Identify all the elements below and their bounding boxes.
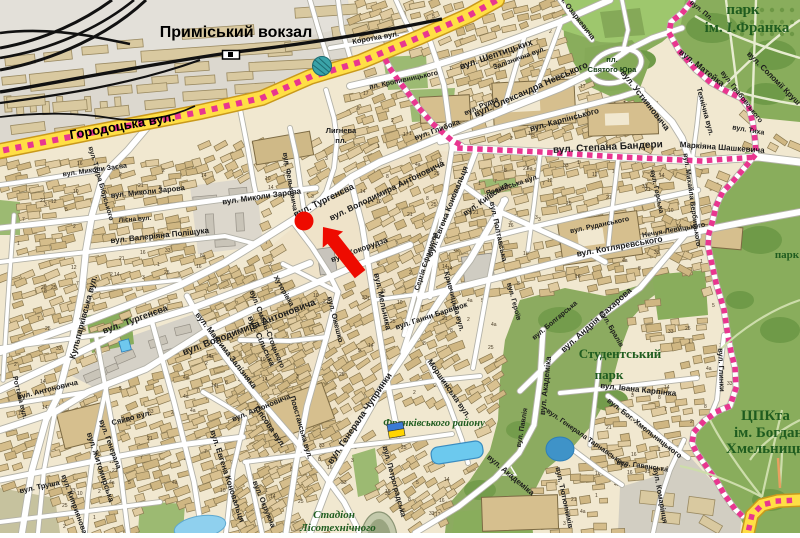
svg-text:пл.: пл. [606,55,617,64]
svg-text:2: 2 [73,224,76,230]
svg-text:33: 33 [165,248,171,254]
svg-text:10: 10 [668,208,674,214]
svg-text:8: 8 [423,341,426,347]
svg-text:25: 25 [298,499,304,505]
svg-text:Приміський вокзал: Приміський вокзал [160,24,312,41]
svg-text:7: 7 [37,316,40,322]
svg-text:5: 5 [712,303,715,309]
svg-text:33: 33 [563,163,569,169]
svg-text:10: 10 [265,176,271,182]
svg-text:ім. І.Франка: ім. І.Франка [705,20,790,36]
svg-text:8: 8 [704,404,707,410]
svg-text:4а: 4а [415,162,421,168]
svg-text:1: 1 [449,66,452,72]
svg-text:2: 2 [269,262,272,268]
svg-text:14: 14 [360,189,366,195]
svg-text:1: 1 [377,144,380,150]
svg-text:парк: парк [775,249,800,261]
svg-text:16: 16 [140,250,146,256]
svg-text:3: 3 [631,393,634,399]
svg-text:14: 14 [444,477,450,483]
svg-text:7: 7 [542,181,545,187]
svg-text:10: 10 [385,489,391,495]
svg-text:21: 21 [645,187,651,193]
svg-text:2: 2 [690,419,693,425]
svg-text:25: 25 [566,201,572,207]
svg-text:4а: 4а [580,509,586,515]
svg-text:2: 2 [409,270,412,276]
svg-text:1: 1 [216,384,219,390]
svg-text:парк: парк [595,367,624,382]
svg-text:2: 2 [98,489,101,495]
svg-text:10: 10 [313,293,319,299]
svg-text:14: 14 [659,173,665,179]
svg-text:14: 14 [114,272,120,278]
svg-text:4а: 4а [622,258,628,264]
svg-text:5: 5 [119,386,122,392]
svg-text:14: 14 [262,377,268,383]
svg-text:8: 8 [638,266,641,272]
svg-text:12: 12 [547,178,553,184]
svg-text:10: 10 [73,189,79,195]
svg-text:ім. Богдана: ім. Богдана [734,425,800,441]
svg-text:8: 8 [450,328,453,334]
svg-text:33: 33 [341,480,347,486]
svg-text:21: 21 [119,256,125,262]
svg-text:1: 1 [658,447,661,453]
svg-text:1: 1 [409,131,412,137]
svg-text:3: 3 [325,156,328,162]
svg-text:2: 2 [14,362,17,368]
svg-text:7: 7 [494,179,497,185]
svg-text:7: 7 [421,305,424,311]
svg-text:4а: 4а [491,322,497,328]
svg-text:2: 2 [510,136,513,142]
svg-text:5: 5 [357,106,360,112]
svg-text:7: 7 [204,449,207,455]
svg-text:4а: 4а [706,366,712,372]
svg-text:7: 7 [664,407,667,413]
svg-text:17: 17 [363,91,369,97]
svg-text:Студентський: Студентський [579,346,662,361]
svg-text:25: 25 [488,345,494,351]
svg-text:2: 2 [377,261,380,267]
svg-text:33: 33 [727,381,733,387]
svg-text:16: 16 [508,223,514,229]
svg-text:Лигнева: Лигнева [326,126,357,135]
svg-text:33: 33 [362,295,368,301]
svg-text:14: 14 [40,379,46,385]
svg-text:5: 5 [203,255,206,261]
svg-text:33: 33 [668,329,674,335]
svg-text:1: 1 [478,181,481,187]
svg-text:4а: 4а [172,480,178,486]
svg-text:25: 25 [62,503,68,509]
svg-text:14: 14 [270,494,276,500]
svg-text:2: 2 [63,524,66,530]
svg-text:ЦПКта: ЦПКта [741,408,790,424]
svg-text:8: 8 [386,174,389,180]
svg-text:25: 25 [51,285,57,291]
svg-text:4а: 4а [190,408,196,414]
svg-text:2: 2 [413,390,416,396]
svg-text:5: 5 [128,480,131,486]
svg-text:2: 2 [467,317,470,323]
svg-text:2: 2 [162,168,165,174]
svg-text:5: 5 [358,348,361,354]
svg-text:16: 16 [631,452,637,458]
svg-text:2: 2 [110,272,113,278]
svg-text:33: 33 [56,346,62,352]
svg-text:25: 25 [431,202,437,208]
svg-text:12: 12 [592,172,598,178]
svg-text:16: 16 [439,498,445,504]
svg-text:4а: 4а [467,298,473,304]
svg-text:1: 1 [700,259,703,265]
svg-text:Святого Юра: Святого Юра [588,65,637,74]
svg-text:3: 3 [351,458,354,464]
svg-text:10: 10 [397,300,403,306]
svg-text:21: 21 [442,316,448,322]
svg-text:2: 2 [205,361,208,367]
svg-text:17: 17 [403,132,409,138]
svg-text:8: 8 [225,380,228,386]
svg-text:14: 14 [368,343,374,349]
svg-text:4а: 4а [183,394,189,400]
svg-text:16: 16 [77,161,83,167]
svg-text:8: 8 [426,196,429,202]
svg-text:1: 1 [688,339,691,345]
svg-text:пл.: пл. [335,136,346,145]
svg-text:1: 1 [595,493,598,499]
svg-text:14: 14 [201,173,207,179]
svg-text:3: 3 [296,374,299,380]
svg-text:12: 12 [71,265,77,271]
svg-text:2: 2 [391,118,394,124]
svg-text:8: 8 [44,289,47,295]
svg-text:12: 12 [51,199,57,205]
svg-text:21: 21 [606,425,612,431]
svg-text:4а: 4а [183,375,189,381]
svg-text:25: 25 [401,445,407,451]
svg-text:8: 8 [504,168,507,174]
svg-text:Стадіон: Стадіон [313,509,355,521]
svg-text:7: 7 [140,455,143,461]
svg-text:21: 21 [571,497,577,503]
svg-text:25: 25 [685,326,691,332]
svg-text:10: 10 [77,491,83,497]
svg-text:21: 21 [147,436,153,442]
svg-text:Лісотехнічного: Лісотехнічного [299,522,376,533]
svg-text:5: 5 [416,480,419,486]
svg-text:3: 3 [517,281,520,287]
svg-text:1: 1 [17,241,20,247]
svg-text:8: 8 [318,457,321,463]
svg-text:16: 16 [627,470,633,476]
svg-text:5: 5 [65,207,68,213]
svg-text:8: 8 [408,497,411,503]
svg-text:парк: парк [726,2,759,18]
svg-text:33: 33 [429,511,435,517]
svg-text:14: 14 [206,354,212,360]
svg-text:1: 1 [577,160,580,166]
svg-text:25: 25 [164,270,170,276]
svg-text:17: 17 [580,84,586,90]
svg-text:7: 7 [196,388,199,394]
svg-text:2: 2 [119,172,122,178]
svg-text:21: 21 [407,212,413,218]
svg-text:3: 3 [142,275,145,281]
svg-text:25: 25 [339,372,345,378]
svg-text:10: 10 [220,488,226,494]
svg-text:16: 16 [575,274,581,280]
svg-text:21: 21 [40,198,46,204]
svg-text:1: 1 [93,515,96,521]
svg-text:вул. Глинки: вул. Глинки [716,348,727,392]
svg-text:16: 16 [196,264,202,270]
svg-text:Хмельницьк: Хмельницьк [726,441,800,457]
svg-text:1: 1 [157,262,160,268]
svg-text:33: 33 [654,250,660,256]
svg-text:4а: 4а [527,166,533,172]
